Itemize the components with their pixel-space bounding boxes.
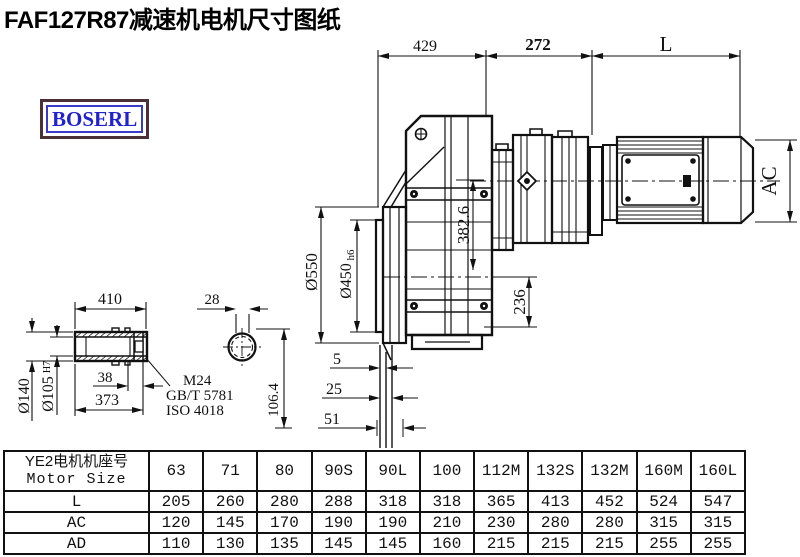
header-motor-size-cn: YE2电机机座号	[5, 453, 148, 471]
fan-cover	[703, 137, 753, 223]
dim-dia140-label: Ø140	[16, 378, 33, 414]
cell: 160	[420, 533, 474, 554]
col-header: 112M	[474, 451, 528, 491]
thread-note-m24: M24	[183, 373, 212, 389]
cell: 452	[582, 491, 636, 512]
dim-25-label: 25	[326, 381, 342, 398]
table-header-row: YE2电机机座号 Motor Size 63 71 80 90S 90L 100…	[4, 451, 745, 491]
col-header: 160M	[637, 451, 691, 491]
cell: 255	[637, 533, 691, 554]
dim-dia105-tolerance: H7	[42, 361, 53, 373]
cell: 135	[257, 533, 311, 554]
output-flange	[376, 170, 406, 448]
dim-28-label: 28	[205, 292, 220, 308]
cell: 547	[691, 491, 745, 512]
col-header: 80	[257, 451, 311, 491]
col-header: 160L	[691, 451, 745, 491]
cell: 170	[257, 512, 311, 533]
cell: 365	[474, 491, 528, 512]
cell: 288	[312, 491, 366, 512]
dim-382-label: 382.6	[454, 206, 473, 244]
col-header: 132S	[528, 451, 582, 491]
cell: 190	[366, 512, 420, 533]
dim-272-label: 272	[525, 35, 551, 54]
cell: 190	[312, 512, 366, 533]
cell: 230	[474, 512, 528, 533]
cell: 145	[203, 512, 257, 533]
cell: 120	[149, 512, 203, 533]
col-header: 71	[203, 451, 257, 491]
cell: 215	[474, 533, 528, 554]
dim-38-label: 38	[98, 370, 113, 386]
cell: 315	[637, 512, 691, 533]
dim-236-label: 236	[510, 289, 529, 315]
dimension-lines	[26, 50, 797, 428]
dim-L-label: L	[660, 32, 673, 56]
cell: 280	[528, 512, 582, 533]
header-motor-size: YE2电机机座号 Motor Size	[4, 451, 149, 491]
col-header: 90S	[312, 451, 366, 491]
cell: 215	[582, 533, 636, 554]
dim-373-label: 373	[95, 392, 119, 409]
cell: 210	[420, 512, 474, 533]
dim-5-label: 5	[333, 351, 341, 368]
drawing-page: FAF127R87减速机电机尺寸图纸 BOSERL	[0, 0, 800, 557]
standard-note-gb: GB/T 5781	[166, 388, 234, 404]
dim-410-label: 410	[98, 291, 122, 308]
dim-dia450-label: Ø450	[338, 263, 355, 299]
dim-106-label: 106.4	[266, 383, 282, 417]
cell: 260	[203, 491, 257, 512]
dimension-arrows	[29, 53, 793, 431]
cell: 145	[366, 533, 420, 554]
cell: 315	[691, 512, 745, 533]
row-label: L	[4, 491, 149, 512]
row-label: AC	[4, 512, 149, 533]
table-row-AD: AD 110 130 135 145 145 160 215 215 215 2…	[4, 533, 745, 554]
cell: 215	[528, 533, 582, 554]
col-header: 90L	[366, 451, 420, 491]
table-row-L: L 205 260 280 288 318 318 365 413 452 52…	[4, 491, 745, 512]
motor-body	[617, 137, 703, 223]
dim-dia105-label: Ø105	[40, 376, 57, 412]
col-header: 63	[149, 451, 203, 491]
cell: 205	[149, 491, 203, 512]
dim-51-label: 51	[324, 411, 340, 428]
cell: 524	[637, 491, 691, 512]
cell: 318	[420, 491, 474, 512]
col-header: 100	[420, 451, 474, 491]
cell: 110	[149, 533, 203, 554]
dim-dia450-tolerance: h6	[345, 249, 357, 261]
standard-note-iso: ISO 4018	[166, 403, 224, 419]
table-row-AC: AC 120 145 170 190 190 210 230 280 280 3…	[4, 512, 745, 533]
cell: 130	[203, 533, 257, 554]
cell: 413	[528, 491, 582, 512]
cell: 318	[366, 491, 420, 512]
motor-size-table: YE2电机机座号 Motor Size 63 71 80 90S 90L 100…	[3, 450, 746, 555]
header-motor-size-en: Motor Size	[5, 471, 148, 489]
dim-429-label: 429	[413, 38, 437, 55]
dim-AC-label: AC	[757, 166, 781, 195]
motor-adapter	[492, 129, 617, 250]
cell: 280	[257, 491, 311, 512]
cell: 255	[691, 533, 745, 554]
dim-dia550-label: Ø550	[302, 253, 321, 291]
row-label: AD	[4, 533, 149, 554]
col-header: 132M	[582, 451, 636, 491]
gearbox-housing	[406, 116, 492, 349]
cell: 145	[312, 533, 366, 554]
cell: 280	[582, 512, 636, 533]
hollow-shaft-detail	[75, 328, 170, 386]
